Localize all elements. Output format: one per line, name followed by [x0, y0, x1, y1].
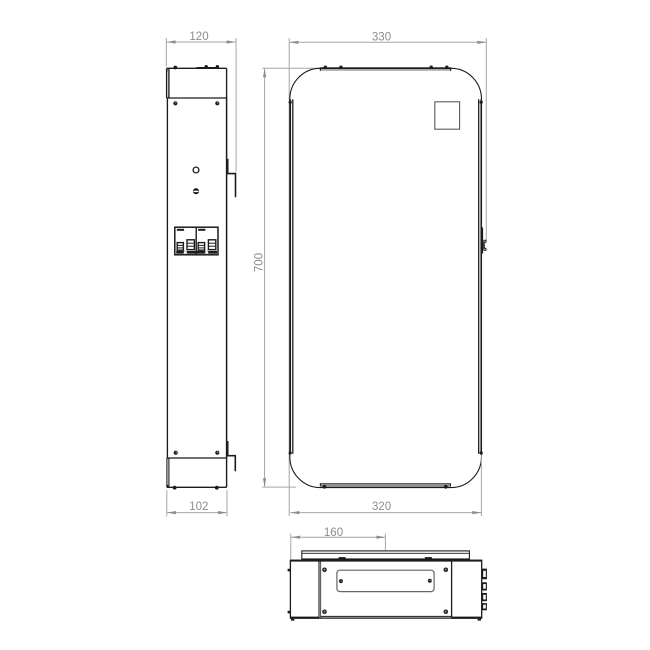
svg-text:102: 102: [189, 501, 208, 513]
svg-text:120: 120: [189, 31, 208, 43]
svg-text:700: 700: [253, 253, 265, 272]
svg-text:160: 160: [324, 527, 343, 539]
svg-text:330: 330: [372, 31, 391, 43]
svg-text:320: 320: [372, 501, 391, 513]
